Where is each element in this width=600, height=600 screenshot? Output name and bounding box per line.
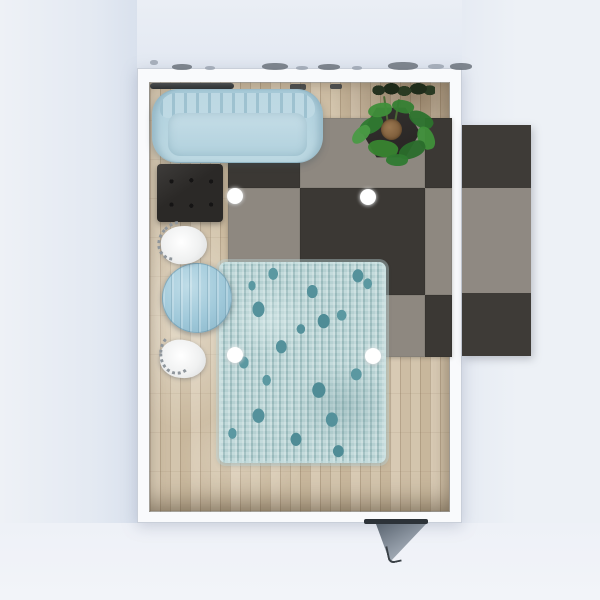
ceiling-light-1[interactable] — [227, 188, 243, 204]
background-left — [0, 0, 137, 600]
round-table[interactable] — [162, 263, 232, 333]
tile-r3c3 — [425, 295, 452, 357]
wall-mark-2 — [330, 84, 342, 89]
plant-soil — [381, 119, 402, 140]
floorplan-scene — [0, 0, 600, 600]
background-bottom — [0, 523, 600, 600]
sofa-seat-cushion — [168, 113, 307, 156]
ceiling-light-3[interactable] — [227, 347, 243, 363]
ceiling-light-4[interactable] — [365, 348, 381, 364]
sofa[interactable] — [152, 89, 323, 163]
checker-rug-overflow[interactable] — [462, 125, 531, 356]
wall-foliage — [371, 82, 435, 97]
door-panel-line — [364, 519, 428, 524]
blue-rug[interactable] — [219, 262, 386, 463]
ceiling-light-2[interactable] — [360, 189, 376, 205]
tile-r2c3 — [425, 188, 452, 295]
ottoman[interactable] — [157, 164, 223, 222]
